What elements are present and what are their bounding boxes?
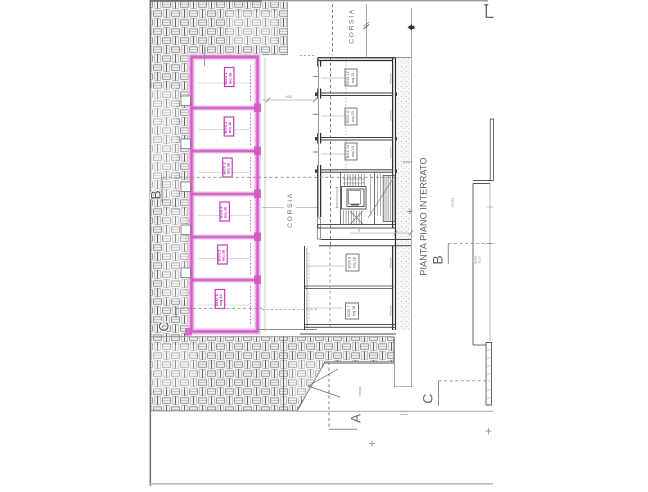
svg-text:rampa: rampa [358, 386, 362, 396]
svg-text:mq 15: mq 15 [351, 146, 355, 157]
svg-text:C: C [156, 321, 172, 331]
svg-text:BOX 12: BOX 12 [346, 71, 350, 84]
svg-text:mq 15: mq 15 [351, 111, 355, 122]
svg-text:B: B [429, 255, 445, 264]
svg-text:mq 16: mq 16 [218, 293, 223, 305]
svg-text:B: B [148, 190, 164, 199]
svg-text:PIANTA PIANO INTERRATO: PIANTA PIANO INTERRATO [419, 157, 429, 275]
svg-text:mq 16: mq 16 [221, 249, 226, 261]
svg-text:BOX 7: BOX 7 [347, 305, 351, 316]
svg-text:corsia: corsia [451, 198, 455, 208]
svg-text:BOX 8: BOX 8 [348, 257, 352, 268]
svg-text:mq 16: mq 16 [226, 162, 231, 174]
svg-text:BOX 10: BOX 10 [346, 145, 350, 158]
svg-text:mq 16: mq 16 [227, 72, 232, 84]
svg-text:mq 15: mq 15 [351, 73, 355, 84]
svg-text:-3.20: -3.20 [478, 256, 482, 264]
svg-text:BOX 11: BOX 11 [346, 110, 350, 123]
svg-text:C: C [420, 394, 436, 404]
svg-text:4.82: 4.82 [286, 95, 293, 99]
svg-text:5: 5 [358, 229, 360, 233]
svg-text:mq 18: mq 18 [353, 257, 357, 268]
svg-text:A: A [348, 413, 364, 423]
svg-text:mq 18: mq 18 [352, 306, 356, 317]
svg-text:mq 16: mq 16 [227, 121, 232, 133]
svg-text:mq 16: mq 16 [223, 206, 228, 218]
svg-text:CORSIA: CORSIA [349, 8, 356, 44]
svg-text:CORSIA: CORSIA [287, 192, 294, 228]
